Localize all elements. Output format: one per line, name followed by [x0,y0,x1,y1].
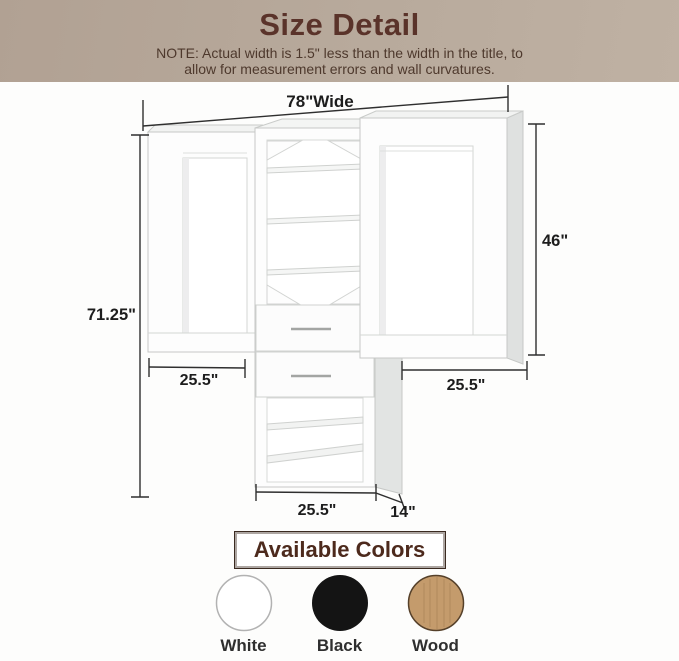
dim-tower-depth: 14" [390,504,415,521]
closet-diagram-svg: 78"Wide 71.25" 46" 25.5" 25.5" 25.5" 14" [0,82,679,530]
available-colors-title: Available Colors [235,532,445,568]
header-banner: Size Detail NOTE: Actual width is 1.5" l… [0,0,679,82]
wood-color-icon [407,574,465,632]
color-label-white: White [220,636,266,656]
right-wardrobe-section [360,111,523,364]
dim-right-section-width: 25.5" [447,377,486,394]
color-swatch-white: White [206,574,282,656]
page-title: Size Detail [0,0,679,43]
left-wardrobe-section [148,125,262,352]
color-label-black: Black [317,636,362,656]
dim-total-height: 71.25" [87,306,136,324]
drawer-2 [256,352,374,397]
white-color-icon [215,574,273,632]
available-colors-section: Available Colors White Black [0,530,679,661]
dim-left-section-width: 25.5" [180,372,219,389]
dim-total-width: 78"Wide [286,92,353,111]
size-diagram: 78"Wide 71.25" 46" 25.5" 25.5" 25.5" 14" [0,82,679,530]
black-color-icon [311,574,369,632]
note-text: NOTE: Actual width is 1.5" less than the… [0,45,679,77]
color-swatch-row: White Black Wood [0,574,679,656]
color-label-wood: Wood [412,636,459,656]
note-line-2: allow for measurement errors and wall cu… [0,61,679,77]
note-line-1: NOTE: Actual width is 1.5" less than the… [0,45,679,61]
color-swatch-wood: Wood [398,574,474,656]
dim-tower-width: 25.5" [298,502,337,519]
dim-right-height: 46" [542,232,568,250]
color-swatch-black: Black [302,574,378,656]
